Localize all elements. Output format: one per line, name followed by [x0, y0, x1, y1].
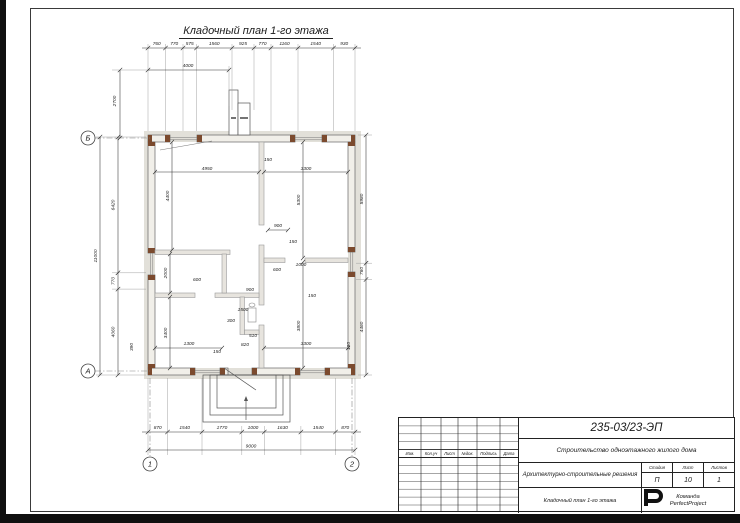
dim-label: 150: [289, 239, 297, 245]
axis-label: А: [84, 367, 90, 376]
dim-label: 1300: [184, 341, 195, 347]
dim-label: 4950: [202, 166, 213, 172]
bottom-dimension-labels: 870 1540 1770 1000 1630 1540 870 9000: [154, 425, 350, 450]
col-header-ndok: №док.: [458, 450, 477, 458]
wc-fixture: [248, 303, 256, 322]
dim-label: 1630: [277, 425, 288, 431]
dim-label: 870: [154, 425, 162, 431]
col-header-koluch: Кол.уч: [421, 450, 441, 458]
dim-label: 1000: [248, 425, 259, 431]
dim-label: 5300: [296, 194, 302, 205]
dim-label: 300: [227, 318, 235, 324]
col-header-izm: Изм.: [399, 450, 421, 458]
dim-label: 390: [129, 343, 135, 351]
perfectproject-logo: [642, 488, 666, 506]
left-dimension-labels: 6420 770 4060 11000 390: [93, 199, 135, 351]
dim-label: 1540: [310, 41, 321, 47]
sheet-name: Кладочный план 1-го этажа: [518, 488, 642, 513]
dim-label: 180: [346, 342, 352, 350]
title-block: Изм. Кол.уч Лист №док. Подпись Дата 235-…: [398, 417, 735, 512]
dim-label: 1540: [313, 425, 324, 431]
dim-label: 925: [239, 41, 247, 47]
dim-label: 600: [273, 267, 281, 273]
dim-label: 3400: [163, 327, 169, 338]
project-name: Строительство одноэтажного жилого дома: [518, 439, 734, 463]
dim-label: 900: [246, 287, 254, 293]
sheet-value: 10: [673, 473, 704, 488]
dim-label: 900: [274, 223, 282, 229]
doc-number: 235-03/23-ЭП: [518, 418, 734, 439]
dim-label: 1560: [209, 41, 220, 47]
dim-label: 760: [153, 41, 161, 47]
dim-label: 4000: [183, 63, 194, 69]
dim-label: 1000: [296, 262, 307, 268]
dim-label: 1500: [238, 307, 249, 313]
dim-label: 150: [213, 349, 221, 355]
dim-label: 770: [111, 277, 117, 285]
dim-label: 820: [241, 342, 249, 348]
sheet-label: Лист: [673, 463, 704, 473]
dim-label: 770: [258, 41, 266, 47]
dim-label: 600: [193, 277, 201, 283]
dim-label: 575: [186, 41, 194, 47]
sheets-value: 1: [704, 473, 734, 488]
axis-label: 1: [148, 460, 152, 469]
axis-label: Б: [86, 134, 91, 143]
dim-label: 1160: [279, 41, 290, 47]
revision-grid: [399, 418, 518, 511]
dim-label: 6420: [111, 199, 117, 210]
company-name: Команда PerfectProject: [670, 494, 706, 507]
dim-label: 1540: [179, 425, 190, 431]
stage-label: Стадия: [642, 463, 673, 473]
dim-label: 4060: [111, 326, 117, 337]
dim-label: 870: [341, 425, 349, 431]
dim-label: 2000: [163, 267, 169, 279]
dim-label: 4460: [359, 321, 365, 332]
dim-label: 3300: [301, 166, 312, 172]
col-header-list: Лист: [441, 450, 458, 458]
dim-label: 11000: [93, 249, 99, 262]
dim-label: 5980: [359, 193, 365, 204]
dim-label: 150: [308, 293, 316, 299]
dim-label: 510: [249, 333, 257, 339]
axis-label: 2: [349, 460, 355, 469]
dim-label: 150: [264, 157, 272, 163]
col-header-podpis: Подпись: [477, 450, 500, 458]
dim-label: 3800: [296, 320, 302, 331]
dim-label: 3300: [301, 341, 312, 347]
section-name: Архитектурно-строительные решения: [518, 463, 642, 488]
col-header-data: Дата: [500, 450, 518, 458]
dim-label: 760: [359, 267, 365, 275]
drawing-sheet: Кладочный план 1-го этажа: [0, 0, 740, 523]
dim-label: 930: [340, 41, 348, 47]
company-cell: Команда PerfectProject: [642, 488, 734, 513]
sheets-label: Листов: [704, 463, 734, 473]
dim-label: 1770: [217, 425, 228, 431]
dim-label: 2700: [112, 95, 118, 107]
dim-label: 4400: [165, 190, 171, 201]
dim-label: 770: [170, 41, 178, 47]
dim-label: 9000: [246, 444, 257, 450]
stage-value: П: [642, 473, 673, 488]
